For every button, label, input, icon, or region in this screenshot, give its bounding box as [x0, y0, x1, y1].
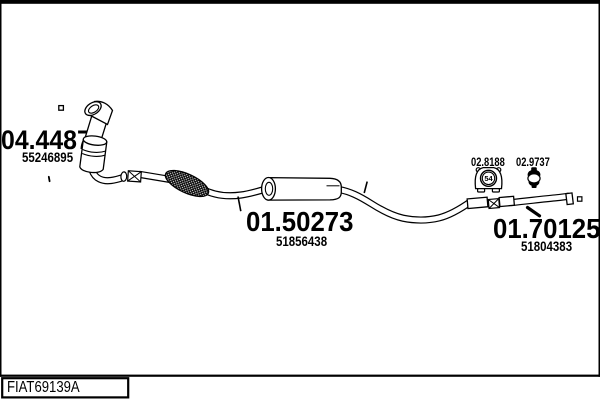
drawing-id: FIAT69139A [7, 380, 80, 396]
end-marker-square [578, 197, 582, 201]
part-code-rubber-mount: 02.8188 [471, 156, 505, 168]
part-code-clamp: 02.9737 [516, 156, 550, 168]
rear-coupling [467, 193, 582, 210]
part-oe-centre-silencer: 51856438 [276, 234, 327, 248]
part-code-centre-silencer: 01.50273 [246, 208, 353, 236]
hanger-tick-1 [238, 197, 241, 212]
clamp-icon [528, 167, 541, 188]
front-clamp [121, 171, 142, 182]
centre-silencer-drawing [262, 178, 342, 201]
exhaust-diagram-page: 04.4487 55246895 01.50273 51856438 01.70… [0, 0, 600, 400]
mount-badge: 54 [484, 174, 493, 183]
reference-tick [49, 177, 50, 181]
hanger-tick-2 [364, 182, 367, 193]
reference-square [59, 106, 64, 111]
front-pipe [92, 170, 265, 196]
part-oe-catalyst: 55246895 [22, 150, 73, 164]
flex-joint [162, 165, 212, 202]
drawing-frame [0, 0, 600, 397]
exhaust-line-art: 54 [0, 0, 600, 400]
rubber-mount-icon: 54 [475, 168, 502, 192]
part-oe-rear-pipe: 51804383 [521, 239, 572, 253]
